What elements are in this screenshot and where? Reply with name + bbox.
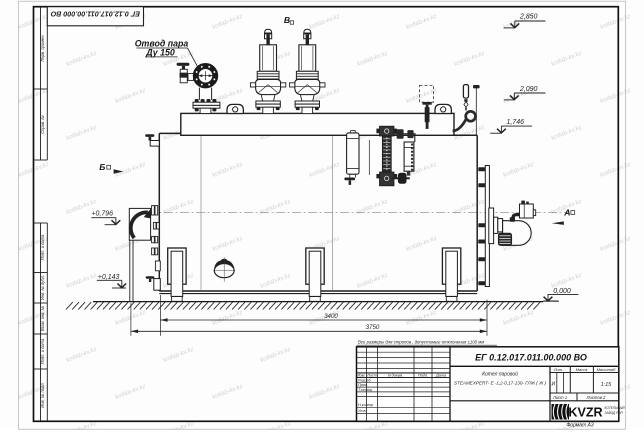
svg-text:Лист: Лист xyxy=(366,373,377,377)
svg-text:3400: 3400 xyxy=(324,313,338,320)
svg-text:ЕГ 0.12.017.011.00.000 ВО: ЕГ 0.12.017.011.00.000 ВО xyxy=(475,353,587,363)
svg-text:Взам. инв. №: Взам. инв. № xyxy=(40,305,45,331)
svg-text:Листов 2: Листов 2 xyxy=(586,395,606,400)
svg-text:В: В xyxy=(284,15,290,25)
svg-text:Лист 1: Лист 1 xyxy=(552,395,567,400)
svg-text:Справ. №: Справ. № xyxy=(40,115,45,134)
svg-text:Инв. № дубл.: Инв. № дубл. xyxy=(40,275,45,300)
svg-text:Т.контр: Т.контр xyxy=(358,388,372,392)
svg-text:Пров.: Пров. xyxy=(358,383,368,387)
svg-text:Перв. примен.: Перв. примен. xyxy=(40,34,45,61)
svg-text:Изм.: Изм. xyxy=(357,373,365,377)
svg-text:+0,796: +0,796 xyxy=(91,211,113,218)
svg-text:Подп. и дата: Подп. и дата xyxy=(40,338,45,364)
svg-text:2,090: 2,090 xyxy=(519,86,538,93)
svg-text:2,850: 2,850 xyxy=(519,14,538,21)
svg-text:Разраб.: Разраб. xyxy=(358,378,372,382)
svg-text:Инв. № подл.: Инв. № подл. xyxy=(40,382,45,407)
svg-text:Котел паровой: Котел паровой xyxy=(482,371,518,378)
svg-text:1:15: 1:15 xyxy=(601,382,612,388)
svg-text:Дата: Дата xyxy=(435,373,446,377)
svg-text:Масса: Масса xyxy=(576,367,589,372)
svg-text:N докум.: N докум. xyxy=(388,373,403,377)
svg-text:ЗАВОД РЭП: ЗАВОД РЭП xyxy=(605,411,624,415)
svg-text:Н.контр: Н.контр xyxy=(358,403,373,407)
svg-text:Все размеры для стропов , допу: Все размеры для стропов , допустимые отк… xyxy=(358,340,484,345)
svg-text:Формат А3: Формат А3 xyxy=(566,423,594,429)
svg-text:Ду 150: Ду 150 xyxy=(145,48,175,58)
svg-text:KVZR: KVZR xyxy=(568,406,602,420)
svg-text:Подп. и дата: Подп. и дата xyxy=(40,234,45,260)
svg-text:И: И xyxy=(551,382,555,388)
svg-text:Масштаб: Масштаб xyxy=(597,367,616,372)
svg-text:ЕГ 0.12.017.011.00.000 ВО: ЕГ 0.12.017.011.00.000 ВО xyxy=(50,10,140,19)
svg-text:Лит.: Лит. xyxy=(553,367,563,372)
svg-text:КОТЕЛЬНЫЙ: КОТЕЛЬНЫЙ xyxy=(605,406,626,410)
svg-text:А: А xyxy=(563,208,570,218)
svg-text:1,746: 1,746 xyxy=(507,119,525,126)
svg-text:STEAMEXPERT- Е -1,2-0,17-130-: STEAMEXPERT- Е -1,2-0,17-130- ГЛЖ ( Ж ) xyxy=(454,381,547,386)
svg-text:Утв.: Утв. xyxy=(358,409,367,413)
svg-text:Подп.: Подп. xyxy=(418,373,428,377)
svg-text:3750: 3750 xyxy=(366,324,380,331)
svg-text:Б: Б xyxy=(99,162,105,172)
